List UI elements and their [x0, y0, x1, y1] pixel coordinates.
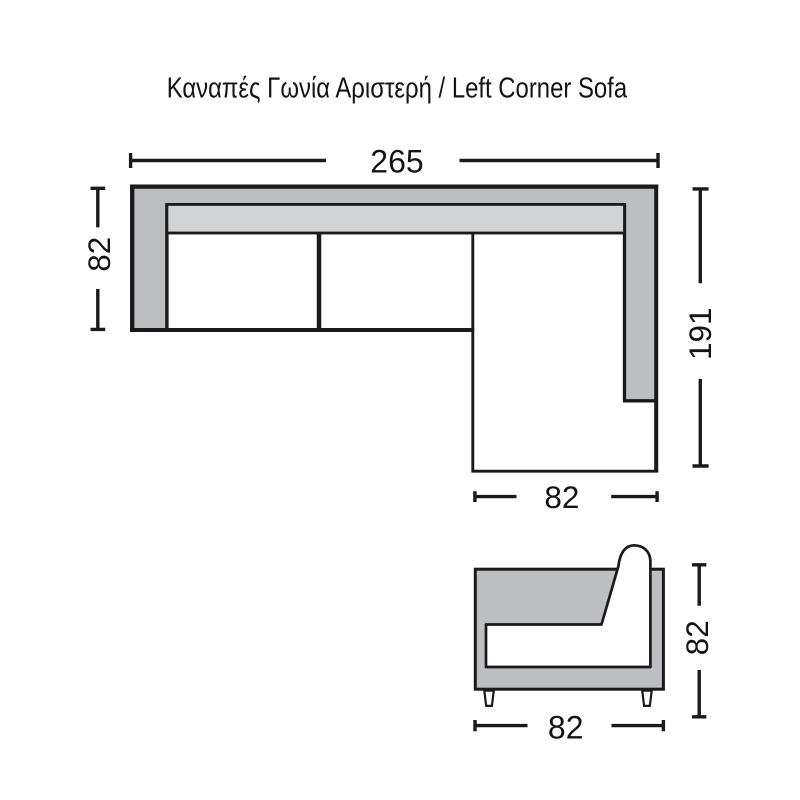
svg-text:82: 82 [544, 479, 579, 515]
svg-text:265: 265 [370, 144, 423, 180]
svg-text:Καναπές Γωνία Αριστερή / Left: Καναπές Γωνία Αριστερή / Left Corner Sof… [167, 71, 628, 104]
svg-text:191: 191 [682, 307, 718, 360]
svg-text:82: 82 [679, 620, 715, 655]
svg-text:82: 82 [81, 237, 117, 272]
svg-text:82: 82 [548, 709, 584, 745]
